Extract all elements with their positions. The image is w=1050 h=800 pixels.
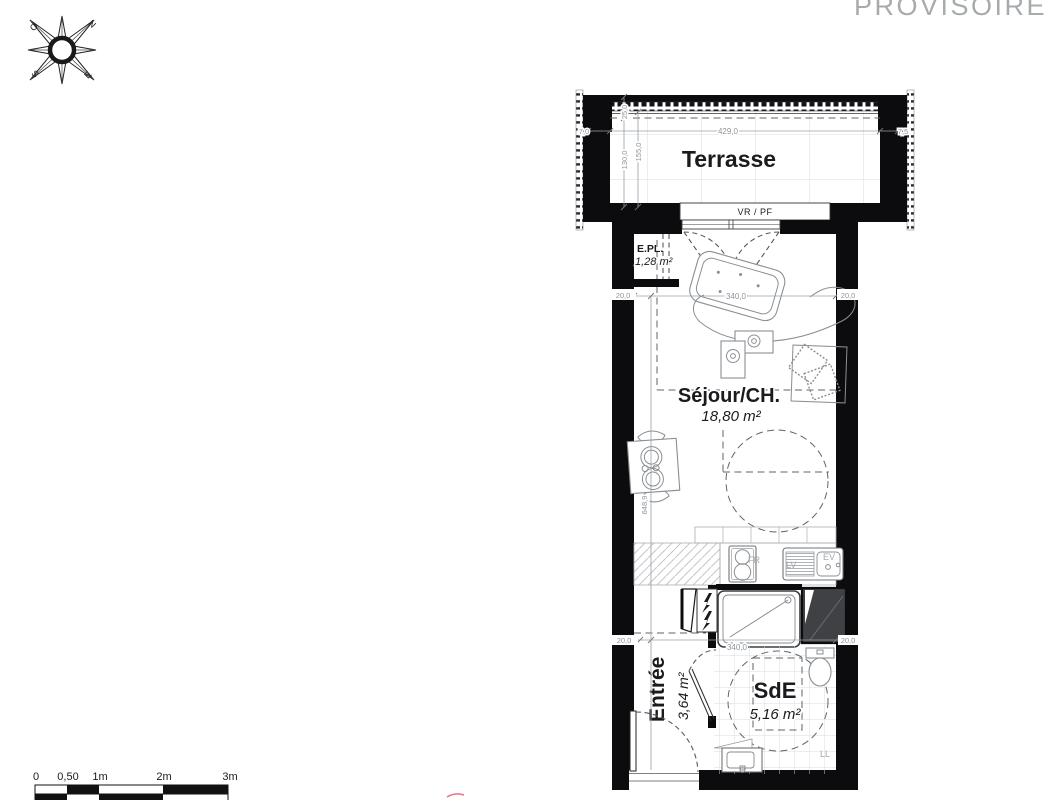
sde-room: LL SdE 5,16 m² xyxy=(689,646,836,774)
scale-tick-1m: 1m xyxy=(92,771,107,783)
entree-area: 3,64 m² xyxy=(675,671,691,720)
compass-rose: O N S E xyxy=(28,16,98,84)
window-roller-label: VR / PF xyxy=(737,207,772,217)
electrical-panel xyxy=(697,589,717,632)
dim-room-width-bottom: 340,0 xyxy=(727,643,748,652)
red-mark xyxy=(447,794,464,797)
kitchen: FR EV LV xyxy=(634,527,843,585)
wc-bowl xyxy=(809,658,831,686)
dim-terrace-side-left: 7,0 xyxy=(579,127,589,136)
sde-door-swing xyxy=(689,650,716,671)
scale-tick-0: 0 xyxy=(33,771,39,783)
hob: FR xyxy=(729,546,760,582)
terrace-railing-balusters xyxy=(583,102,907,111)
provisional-watermark: PROVISOIRE xyxy=(854,0,1047,22)
sde-label: SdE xyxy=(754,678,797,703)
worktop-hatched xyxy=(634,543,720,585)
dim-wall-bottom-right: 20,0 xyxy=(841,636,856,645)
epl-area: 1,28 m² xyxy=(635,256,673,268)
sejour-area: 18,80 m² xyxy=(701,408,761,425)
desk-group xyxy=(721,331,773,378)
door-leaf-panel xyxy=(682,589,696,632)
page: { "watermark": "PROVISOIRE", "compass": … xyxy=(0,0,1050,800)
dim-terrace-depth-total: 155,0 xyxy=(634,143,643,162)
entree-label: Entrée xyxy=(646,657,669,722)
terrace-railing-left xyxy=(576,90,583,230)
dishwasher-label: LV xyxy=(786,560,796,570)
epl-label: E.PL. xyxy=(637,243,663,255)
dim-wall-top-right: 20,0 xyxy=(841,291,856,300)
dim-terrace-width: 429,0 xyxy=(718,127,739,136)
sde-area: 5,16 m² xyxy=(750,706,802,723)
turning-circle-sejour xyxy=(726,430,828,532)
sejour-label: Séjour/CH. xyxy=(678,385,780,407)
entry-door-opening xyxy=(629,770,699,790)
terrace-wall-right xyxy=(880,95,907,221)
terrace-label: Terrasse xyxy=(682,146,776,172)
kitchen-sink: EV LV xyxy=(783,548,843,580)
dim-room-depth: 648,9 xyxy=(640,496,649,515)
terrace-railing-top-rail xyxy=(583,95,907,102)
fridge-label: FR xyxy=(748,555,760,565)
dim-wall-bottom-left: 20,0 xyxy=(617,636,632,645)
upper-cabinets xyxy=(695,527,836,543)
shower xyxy=(718,591,800,647)
dim-terrace-side-right: 7,5 xyxy=(898,127,908,136)
wall-left xyxy=(612,222,634,790)
bed-headboard xyxy=(687,249,788,324)
technical-duct xyxy=(802,588,846,643)
washing-machine-label: LL xyxy=(820,749,830,759)
entree-room: Entrée 3,64 m² xyxy=(630,633,706,772)
dim-room-width-top: 340,0 xyxy=(726,292,747,301)
bath-block xyxy=(682,584,846,648)
dining-table xyxy=(627,429,681,503)
dim-terrace-depth-inner: 130,0 xyxy=(620,151,629,170)
entry-door-leaf xyxy=(630,711,636,771)
terrace: 429,0 7,0 7,5 25,0 130,0 155,0 Terrasse … xyxy=(576,90,914,230)
pouf-1 xyxy=(789,345,828,384)
bed xyxy=(687,249,855,342)
scale-bar: 0 0,50 1m 2m 3m xyxy=(33,771,238,800)
floor-plan-canvas: O N S E 429,0 7,0 7,5 xyxy=(0,0,1050,800)
compass-west-label: O xyxy=(28,21,40,33)
sink-label: EV xyxy=(823,552,835,562)
scale-tick-2m: 2m xyxy=(156,771,171,783)
dim-wall-top-left: 20,0 xyxy=(616,291,631,300)
terrace-railing-right xyxy=(907,90,914,230)
scale-tick-050: 0,50 xyxy=(57,771,78,783)
epl-wall-stub xyxy=(634,279,679,287)
dim-railing-depth: 25,0 xyxy=(620,105,629,120)
side-table xyxy=(721,341,745,378)
compass-center xyxy=(50,38,74,62)
scale-tick-3m: 3m xyxy=(222,771,237,783)
sejour-room: E.PL. 1,28 m² Séjour/CH. 18, xyxy=(627,232,855,532)
terrace-wall-left xyxy=(583,95,610,221)
